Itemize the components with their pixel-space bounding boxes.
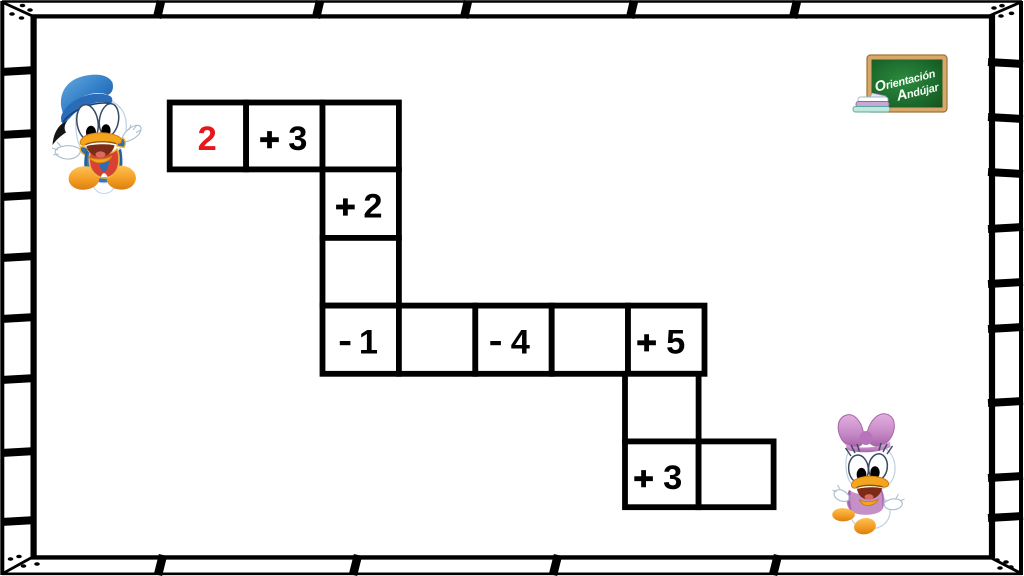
svg-text:5: 5 (666, 323, 685, 361)
svg-text:2: 2 (363, 188, 382, 226)
svg-text:1: 1 (359, 323, 378, 361)
svg-text:4: 4 (511, 323, 530, 361)
svg-text:2: 2 (198, 120, 217, 158)
svg-text:3: 3 (663, 459, 682, 497)
svg-text:3: 3 (288, 120, 307, 158)
